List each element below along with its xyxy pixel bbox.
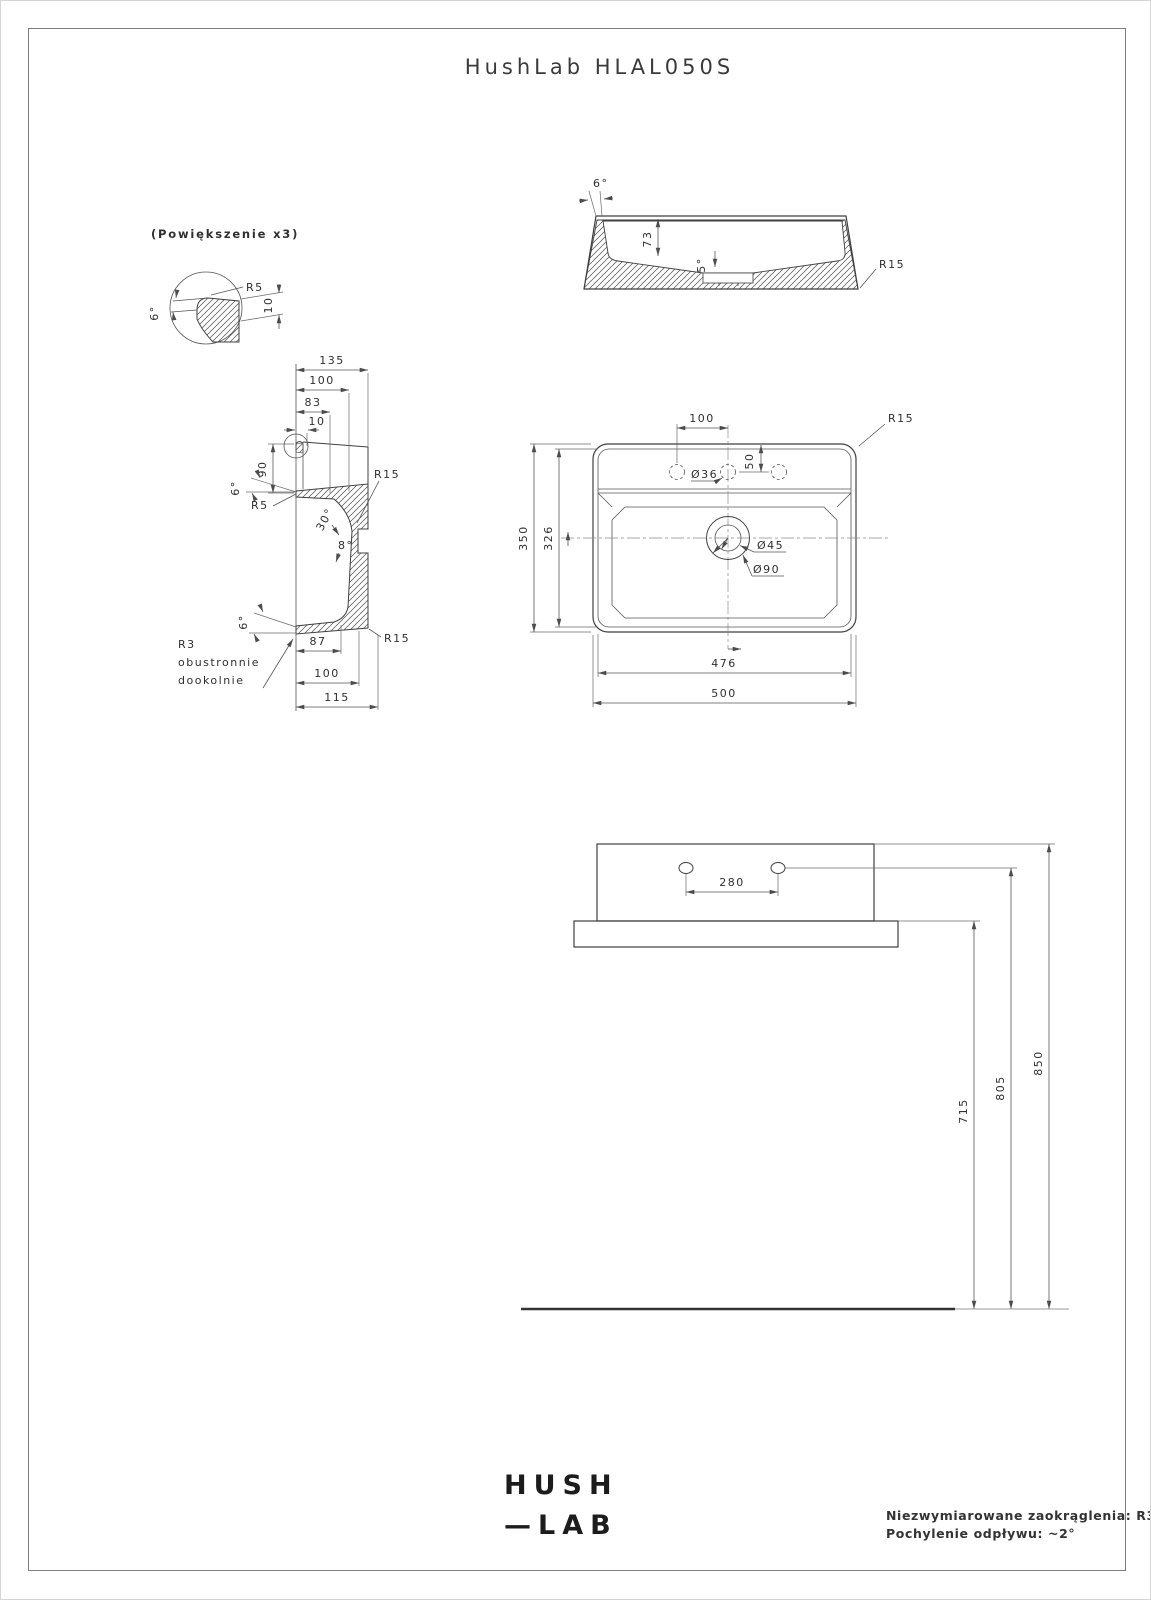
section-rim-hatched-tip (296, 443, 303, 453)
top-dia90-label: Ø90 (753, 563, 780, 576)
side-bottom-slope-label: 5° (695, 257, 708, 273)
front-280-label: 280 (719, 876, 745, 889)
front-mount-hole-left (679, 863, 693, 874)
detail-thickness-label: 10 (262, 297, 275, 314)
section-83-label: 83 (305, 396, 322, 409)
side-angle-6-dimension (579, 191, 613, 216)
section-87-label: 87 (310, 635, 327, 648)
top-tap-deck-edge (598, 489, 851, 507)
section-r15-bottom-label: R15 (384, 632, 410, 645)
section-115-label: 115 (324, 691, 350, 704)
detail-r5-leader (211, 287, 243, 295)
section-r15-bottom-leader (369, 629, 381, 637)
front-715-label: 715 (957, 1098, 970, 1124)
top-tap-hole-right (772, 465, 787, 480)
side-r15-leader (860, 269, 876, 288)
section-90-label: 90 (256, 461, 269, 478)
top-476-label: 476 (711, 657, 737, 670)
top-dia45-label: Ø45 (757, 539, 784, 552)
brand-logo-line1: HUSH (504, 1466, 619, 1506)
detail-angle-label: 6° (148, 305, 161, 321)
brand-logo-line2: —LAB (504, 1506, 619, 1546)
profile-section-view: 135 100 83 10 90 6° R5 R15 (178, 354, 410, 711)
section-8deg-arrow (336, 553, 339, 562)
general-note-drain-slope: Pochylenie odpływu: ~2° (886, 1525, 1151, 1543)
section-30deg-label: 30° (314, 506, 337, 533)
section-r3-note-line1: R3 (178, 638, 196, 651)
top-dia36-label: Ø36 (691, 468, 718, 481)
detail-view-magnified-rim: (Powiększenie x3) 6° R5 10 (148, 227, 299, 344)
side-drain-recess (703, 273, 753, 283)
detail-rim-section (197, 298, 239, 342)
top-tap-hole-left (670, 465, 685, 480)
side-angle-6-label: 6° (593, 177, 609, 190)
section-100-bottom-label: 100 (314, 667, 340, 680)
side-depth-label: 73 (641, 231, 654, 248)
top-326-label: 326 (542, 525, 555, 551)
section-r5-leader (273, 494, 296, 506)
top-500-label: 500 (711, 687, 737, 700)
front-805-label: 805 (994, 1075, 1007, 1101)
top-350-label: 350 (517, 525, 530, 551)
detail-caption: (Powiększenie x3) (151, 227, 299, 241)
detail-r5-label: R5 (246, 281, 264, 294)
section-135-label: 135 (319, 354, 345, 367)
top-50-label: 50 (743, 453, 756, 470)
section-100-top-label: 100 (309, 374, 335, 387)
section-90-dimension (268, 444, 294, 493)
section-angle6-top-label: 6° (229, 480, 242, 496)
section-wall-hatched-body (296, 484, 368, 634)
side-section-view: 6° 73 5° R15 (579, 177, 905, 289)
front-basin-lower-ledge (574, 921, 898, 947)
section-r15-top-label: R15 (374, 468, 400, 481)
top-plan-view: 100 50 Ø36 R15 350 (517, 412, 914, 707)
general-notes: Niezwymiarowane zaokrąglenia: R3 Pochyle… (886, 1507, 1151, 1543)
front-height-extension-lines (785, 844, 1055, 921)
section-angle6-top (246, 471, 296, 499)
section-r3-note-line2: obustronnie (178, 656, 260, 669)
section-top-dimensions (284, 370, 368, 493)
brand-logo: HUSH —LAB (504, 1466, 619, 1546)
front-mount-hole-right (771, 863, 785, 874)
section-angle6-bottom (249, 605, 296, 640)
general-note-rounding: Niezwymiarowane zaokrąglenia: R3 (886, 1507, 1151, 1525)
section-top-face-line (303, 442, 368, 447)
section-angle6-bottom-label: 6° (237, 614, 250, 630)
section-8deg-label: 8° (338, 539, 354, 552)
section-r3-note-line3: dookolnie (178, 674, 245, 687)
section-r3-note: R3 obustronnie dookolnie (178, 638, 293, 688)
top-476-dimension (598, 634, 851, 677)
section-10-label: 10 (309, 415, 326, 428)
top-r15-label: R15 (888, 412, 914, 425)
side-r15-label: R15 (879, 258, 905, 271)
technical-drawing-canvas: (Powiększenie x3) 6° R5 10 (1, 1, 1151, 1600)
top-100-label: 100 (689, 412, 715, 425)
front-installation-view: 280 850 805 715 (521, 844, 1069, 1309)
top-bowl-opening (612, 507, 837, 618)
front-850-label: 850 (1032, 1050, 1045, 1076)
section-30deg-arrow (332, 525, 339, 535)
section-r5-label: R5 (251, 499, 269, 512)
drawing-sheet: HushLab HLAL050S (Powiększenie x3) 6° R5 (0, 0, 1151, 1600)
top-350-dimension (530, 444, 591, 632)
top-r15-leader (859, 424, 885, 446)
